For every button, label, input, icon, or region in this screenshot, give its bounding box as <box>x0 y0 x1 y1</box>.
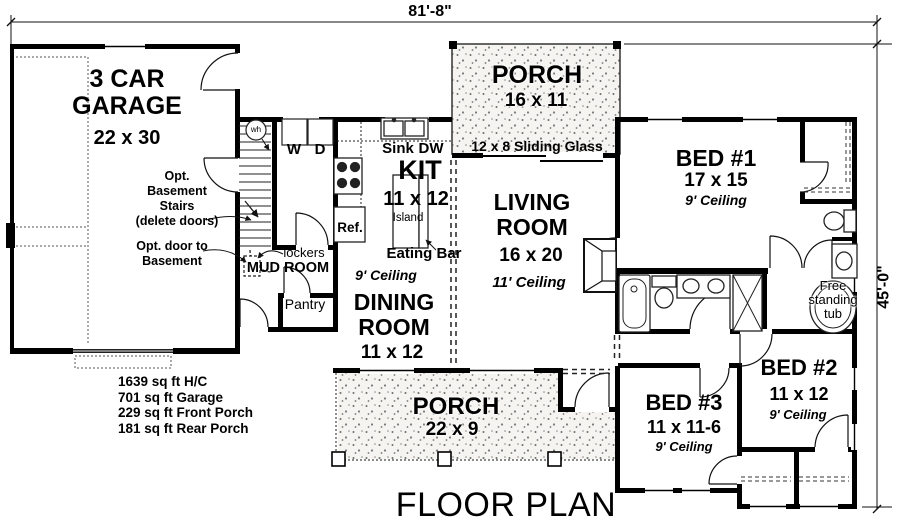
area-line: 181 sq ft Rear Porch <box>118 421 253 437</box>
dryer-label: D <box>315 142 326 158</box>
living-ceiling: 11' Ceiling <box>492 275 565 291</box>
front-porch-size: 22 x 9 <box>426 420 479 441</box>
bed3-size: 11 x 11-6 <box>647 418 721 437</box>
mud-room-label: MUD ROOM <box>247 261 329 277</box>
toilet-tank <box>652 276 676 287</box>
bed3-ceiling: 9' Ceiling <box>655 440 712 454</box>
kitchen-size: 11 x 12 <box>383 189 449 211</box>
bed1-name: BED #1 <box>676 146 757 171</box>
eating-bar-label: Eating Bar <box>386 246 461 262</box>
sliding-glass-label: 12 x 8 Sliding Glass <box>471 139 603 154</box>
opt-stairs-note: Opt. Basement Stairs (delete doors) <box>136 169 219 229</box>
rear-porch-size: 16 x 11 <box>505 91 567 112</box>
floor-plan-canvas: 81'-8" 45'-0" 3 CAR GARAGE 22 x 30 PORCH… <box>0 0 900 531</box>
stairs <box>239 126 271 246</box>
bed2-ceiling: 9' Ceiling <box>769 408 826 422</box>
living-name: LIVING ROOM <box>457 190 607 240</box>
refrigerator-label: Ref. <box>337 221 363 236</box>
toilet-tank <box>844 210 856 232</box>
toilet-bowl <box>824 212 844 230</box>
dining-size: 11 x 12 <box>361 343 423 364</box>
water-heater-label: wh <box>251 126 261 135</box>
kitchen-name: KIT <box>398 156 442 185</box>
area-line: 701 sq ft Garage <box>118 390 253 406</box>
bed3-name: BED #3 <box>645 391 722 415</box>
lockers-label: lockers <box>283 246 324 260</box>
dimension-width-label: 81'-8" <box>408 3 451 20</box>
bed2-name: BED #2 <box>760 356 837 380</box>
toilet-bowl <box>655 288 673 308</box>
island-label: Island <box>393 212 424 224</box>
dimension-height-label: 45'-0" <box>875 265 892 308</box>
dining-ceiling: 9' Ceiling <box>355 268 417 283</box>
fireplace <box>584 239 616 292</box>
living-size: 16 x 20 <box>499 246 562 267</box>
page-title: FLOOR PLAN <box>396 487 616 524</box>
opt-basement-door-note: Opt. door to Basement <box>136 239 208 269</box>
bed1-ceiling: 9' Ceiling <box>685 193 747 208</box>
washer-label: W <box>287 142 301 158</box>
area-line: 229 sq ft Front Porch <box>118 405 253 421</box>
bed2-size: 11 x 12 <box>769 385 828 404</box>
free-standing-tub-label: Free standing tub <box>808 279 857 321</box>
area-summary: 1639 sq ft H/C 701 sq ft Garage 229 sq f… <box>118 374 253 436</box>
dining-name: DINING ROOM <box>329 290 459 340</box>
front-porch-name: PORCH <box>413 394 500 420</box>
bed1-size: 17 x 15 <box>684 171 747 192</box>
garage-name: 3 CAR GARAGE <box>52 66 202 120</box>
area-line: 1639 sq ft H/C <box>118 374 253 390</box>
garage-size: 22 x 30 <box>94 128 161 150</box>
rear-porch-name: PORCH <box>492 62 582 89</box>
pantry-label: Pantry <box>285 297 325 312</box>
